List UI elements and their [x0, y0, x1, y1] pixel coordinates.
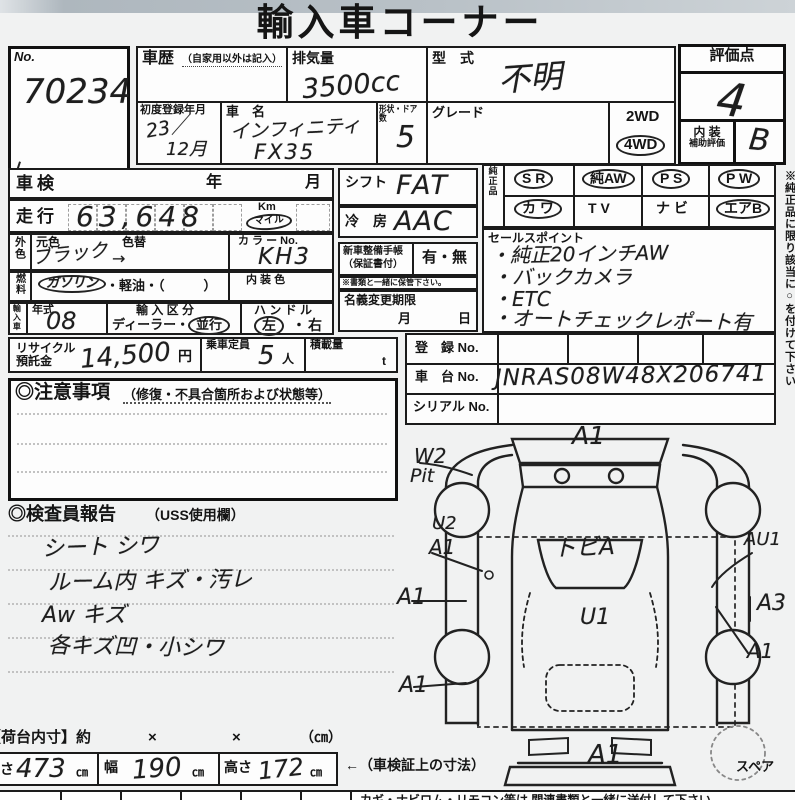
sales-points-box: セールスポイント ・純正20インチAW ・バックカメラ ・ETC ・オートチェッ…	[482, 228, 776, 333]
inspector-section: ◎検査員報告 （USS使用欄） シート シワ ルーム内 キズ・汚レ Aw キズ …	[8, 505, 398, 735]
first-registration-value-month: 12月	[166, 141, 207, 159]
transfer-box: 名義変更期限 月 日	[338, 290, 478, 332]
service-book-box: 新車整備手帳 （保証書付） 有・無	[338, 242, 478, 276]
shift-label: シフト	[345, 175, 387, 190]
mark-a3: A3	[757, 593, 786, 615]
genuine-airbag: エアB	[716, 199, 770, 219]
genuine-sr: S R	[514, 169, 553, 189]
drivetrain-box: 2WD 4WD	[608, 101, 676, 165]
service-book-note-text: ※書類と一緒に保管下さい。	[342, 279, 446, 287]
score-label: 評価点	[709, 47, 754, 64]
mileage-label: 走行	[16, 208, 58, 226]
inspector-note: （USS使用欄）	[146, 508, 245, 523]
length-unit: ㎝	[76, 766, 88, 779]
import-class-label: 輸 入 区 分	[136, 304, 194, 317]
color-change-label: 色替	[122, 236, 146, 249]
interior-grade-label2: 補助評価	[681, 139, 733, 148]
shift-box: シフト FAT	[338, 168, 478, 206]
width-value: 190	[131, 754, 182, 783]
mark-au1: AU1	[744, 531, 781, 549]
mark-a1-rear: A1	[588, 742, 622, 768]
history-note: （自家用以外は記入）	[182, 55, 282, 67]
model-code-label: 型 式	[432, 51, 474, 66]
registration-no-label: 登 録 No.	[415, 341, 479, 355]
transfer-label: 名義変更期限	[344, 294, 416, 307]
displacement-label: 排気量	[292, 51, 334, 66]
drivetrain-2wd: 2WD	[626, 109, 659, 125]
transfer-month-label: 月	[398, 312, 411, 326]
caution-title: ◎注意事項	[15, 383, 110, 403]
mark-w2: W2	[414, 446, 447, 466]
steering-dot: ・	[292, 318, 306, 333]
import-vertical-label: 輸入車	[12, 304, 20, 331]
steering-left-option: 左	[254, 316, 284, 336]
grade-label: グレード	[432, 106, 484, 120]
recycle-row: リサイクル 預託金 14,500 円 乗車定員 5 人 積載量 t	[8, 337, 398, 373]
score-value: 4	[714, 75, 749, 125]
shaken-row: 車検 年 月	[8, 168, 334, 199]
model-code-value: 不明	[497, 60, 563, 96]
shaken-year-label: 年	[206, 175, 222, 192]
mileage-value: 63,648	[76, 203, 204, 231]
lot-number-value: 70234	[23, 75, 131, 109]
interior-grade-value: B	[747, 125, 771, 157]
dims-arrow-note: ←（車検証上の寸法）	[345, 758, 485, 773]
height-label: 高さ	[224, 760, 252, 775]
mark-tobi-windshield: トビA	[553, 536, 615, 561]
dims-x2: ×	[232, 730, 241, 746]
spare-tire-label: スペア	[736, 760, 774, 774]
history-label: 車歴	[142, 51, 174, 68]
service-book-value: 有・無	[422, 250, 467, 266]
ac-label: 冷 房	[345, 214, 387, 229]
import-row: 輸入車 年式 08 輸 入 区 分 ディーラー・ 並行 ハ ン ド ル 左 ・ …	[8, 302, 334, 335]
inner-dims-label: 【荷台内寸】約	[0, 730, 91, 746]
dims-x1: ×	[148, 730, 157, 746]
original-color-value: ブラック	[31, 241, 109, 268]
transfer-day-label: 日	[458, 312, 471, 326]
recycle-label2: 預託金	[16, 355, 52, 368]
genuine-parts-label: 純正品	[487, 166, 496, 196]
model-code-box: 型 式 不明	[426, 46, 676, 103]
genuine-parts-box: 純正品 S R 純AW P S P W カ ワ T V ナ ビ エアB	[482, 164, 776, 228]
mark-pit: Pit	[410, 467, 434, 486]
exterior-color-row: 外色 元色 色替 ブラック → カ ラ ー No. KH3	[8, 233, 334, 271]
car-name-line2: FX35	[254, 142, 315, 163]
car-name-line1: インフィニティ	[230, 117, 362, 143]
ac-value: AAC	[394, 208, 453, 235]
grade-box: グレード	[426, 101, 610, 165]
service-book-label2: （保証書付）	[343, 260, 403, 271]
recycle-label1: リサイクル	[16, 342, 75, 355]
mark-a1-right-low: A1	[747, 641, 773, 661]
genuine-pw: P W	[718, 169, 760, 189]
mark-u2: U2	[432, 515, 457, 533]
caution-box: ◎注意事項 （修復・不具合箇所および状態等）	[8, 378, 398, 501]
inspector-title: ◎検査員報告	[8, 505, 116, 524]
mark-a1-left-upper: A1	[429, 537, 455, 557]
fuel-other-options: ・軽油・（ ）	[106, 279, 217, 293]
ac-box: 冷 房 AAC	[338, 206, 478, 238]
sales-line-4: ・オートチェックレポート有	[492, 308, 752, 333]
genuine-kawa: カ ワ	[514, 199, 562, 219]
fuel-label: 燃料	[13, 273, 24, 295]
import-dealer-option: ディーラー・	[112, 318, 189, 332]
fuel-gasoline: ガソリン	[38, 275, 106, 293]
doors-value: 5	[396, 123, 415, 153]
page-title: 輸入車コーナー	[225, 4, 575, 43]
bottom-cut-strip: カギ・ナビロム・リモコン等は 関連書類と一緒に送付して下さい。	[0, 790, 795, 800]
recycle-unit: 円	[178, 349, 192, 364]
mark-a1-front: A1	[572, 423, 605, 448]
chassis-no-value: JNRAS08W48X206741	[495, 363, 768, 391]
model-year-value: 08	[46, 309, 77, 333]
service-book-note: ※書類と一緒に保管下さい。	[338, 276, 478, 290]
bottom-note-text: カギ・ナビロム・リモコン等は 関連書類と一緒に送付して下さい。	[360, 794, 723, 800]
dimensions-box: 長さ 473 ㎝ 幅 190 ㎝ 高さ 172 ㎝	[0, 752, 338, 786]
genuine-navi: ナ ビ	[656, 201, 688, 216]
mileage-unit-mile: マイル	[246, 212, 293, 231]
mark-a1-left-low: A1	[399, 675, 428, 697]
height-value: 172	[257, 755, 305, 784]
color-no-value: KH3	[258, 246, 311, 269]
steering-right-option: 右	[308, 318, 322, 333]
sales-line-2: ・バックカメラ	[492, 267, 632, 287]
drivetrain-4wd: 4WD	[616, 135, 665, 156]
dims-unit-note: （㎝）	[300, 730, 342, 745]
shift-value: FAT	[396, 172, 449, 199]
load-unit: t	[382, 355, 386, 368]
displacement-box: 排気量 3500cc	[286, 46, 428, 103]
interior-grade-label1: 内 装	[681, 126, 733, 139]
first-registration-value-year: 23／	[145, 115, 191, 141]
serial-no-label: シリアル No.	[413, 400, 489, 414]
genuine-ps: P S	[652, 169, 690, 189]
car-name-box: 車 名 インフィニティ FX35	[220, 101, 378, 165]
side-vertical-note: ※純正品に限り該当に○を付けて下さい	[783, 170, 795, 460]
shaken-month-label: 月	[305, 175, 321, 192]
interior-color-label: 内 装 色	[246, 275, 285, 287]
capacity-value: 5	[258, 343, 275, 369]
sales-line-1: ・純正20インチAW	[490, 242, 669, 265]
inner-dims-row: 【荷台内寸】約 × × （㎝）	[0, 730, 340, 750]
import-parallel-option: 並行	[188, 316, 230, 335]
capacity-label: 乗車定員	[206, 340, 250, 352]
car-name-label: 車 名	[226, 105, 265, 119]
length-value: 473	[16, 756, 66, 782]
shaken-label: 車検	[16, 175, 58, 193]
mark-a1-left-mid: A1	[397, 587, 426, 609]
chassis-no-label: 車 台 No.	[415, 370, 479, 384]
fuel-row: 燃料 ガソリン ・軽油・（ ） 内 装 色	[8, 271, 334, 302]
load-label: 積載量	[310, 340, 343, 352]
color-change-arrow: →	[112, 251, 125, 267]
capacity-unit: 人	[282, 353, 294, 366]
width-label: 幅	[104, 760, 118, 775]
inspector-line-1: シート シワ	[42, 535, 160, 561]
doors-box: 形状・ドア数 5	[376, 101, 428, 165]
inspector-line-2: ルーム内 キズ・汚レ	[48, 569, 253, 595]
length-label: 長さ	[0, 762, 14, 777]
score-box: 評価点 4 内 装 補助評価 B	[678, 44, 786, 165]
recycle-value: 14,500	[79, 339, 172, 373]
history-box: 車歴 （自家用以外は記入）	[136, 46, 288, 103]
inspector-line-4: 各キズ凹・小シワ	[48, 635, 224, 660]
registration-box: 登 録 No. 車 台 No. JNRAS08W48X206741 シリアル N…	[405, 333, 776, 425]
auction-sheet: 輸入車コーナー No. 70234 車歴 （自家用以外は記入） 排気量 3500…	[0, 0, 795, 800]
exterior-color-label: 外色	[13, 236, 25, 260]
lot-number-label: No.	[14, 50, 35, 64]
genuine-aw: 純AW	[582, 169, 635, 189]
height-unit: ㎝	[310, 766, 322, 779]
displacement-value: 3500cc	[301, 68, 401, 103]
steering-label: ハ ン ド ル	[254, 304, 312, 317]
caution-note: （修復・不具合箇所および状態等）	[123, 388, 331, 404]
genuine-tv: T V	[588, 201, 610, 216]
width-unit: ㎝	[192, 766, 204, 779]
service-book-label1: 新車整備手帳	[343, 247, 403, 258]
mark-u1-roof: U1	[580, 607, 610, 629]
first-registration-box: 初度登録年月 23／ 12月	[136, 101, 222, 165]
mileage-row: 走行 63,648 Km マイル	[8, 199, 334, 233]
inspector-line-3: Aw キズ	[42, 605, 126, 627]
mileage-unit-km: Km	[258, 202, 276, 214]
